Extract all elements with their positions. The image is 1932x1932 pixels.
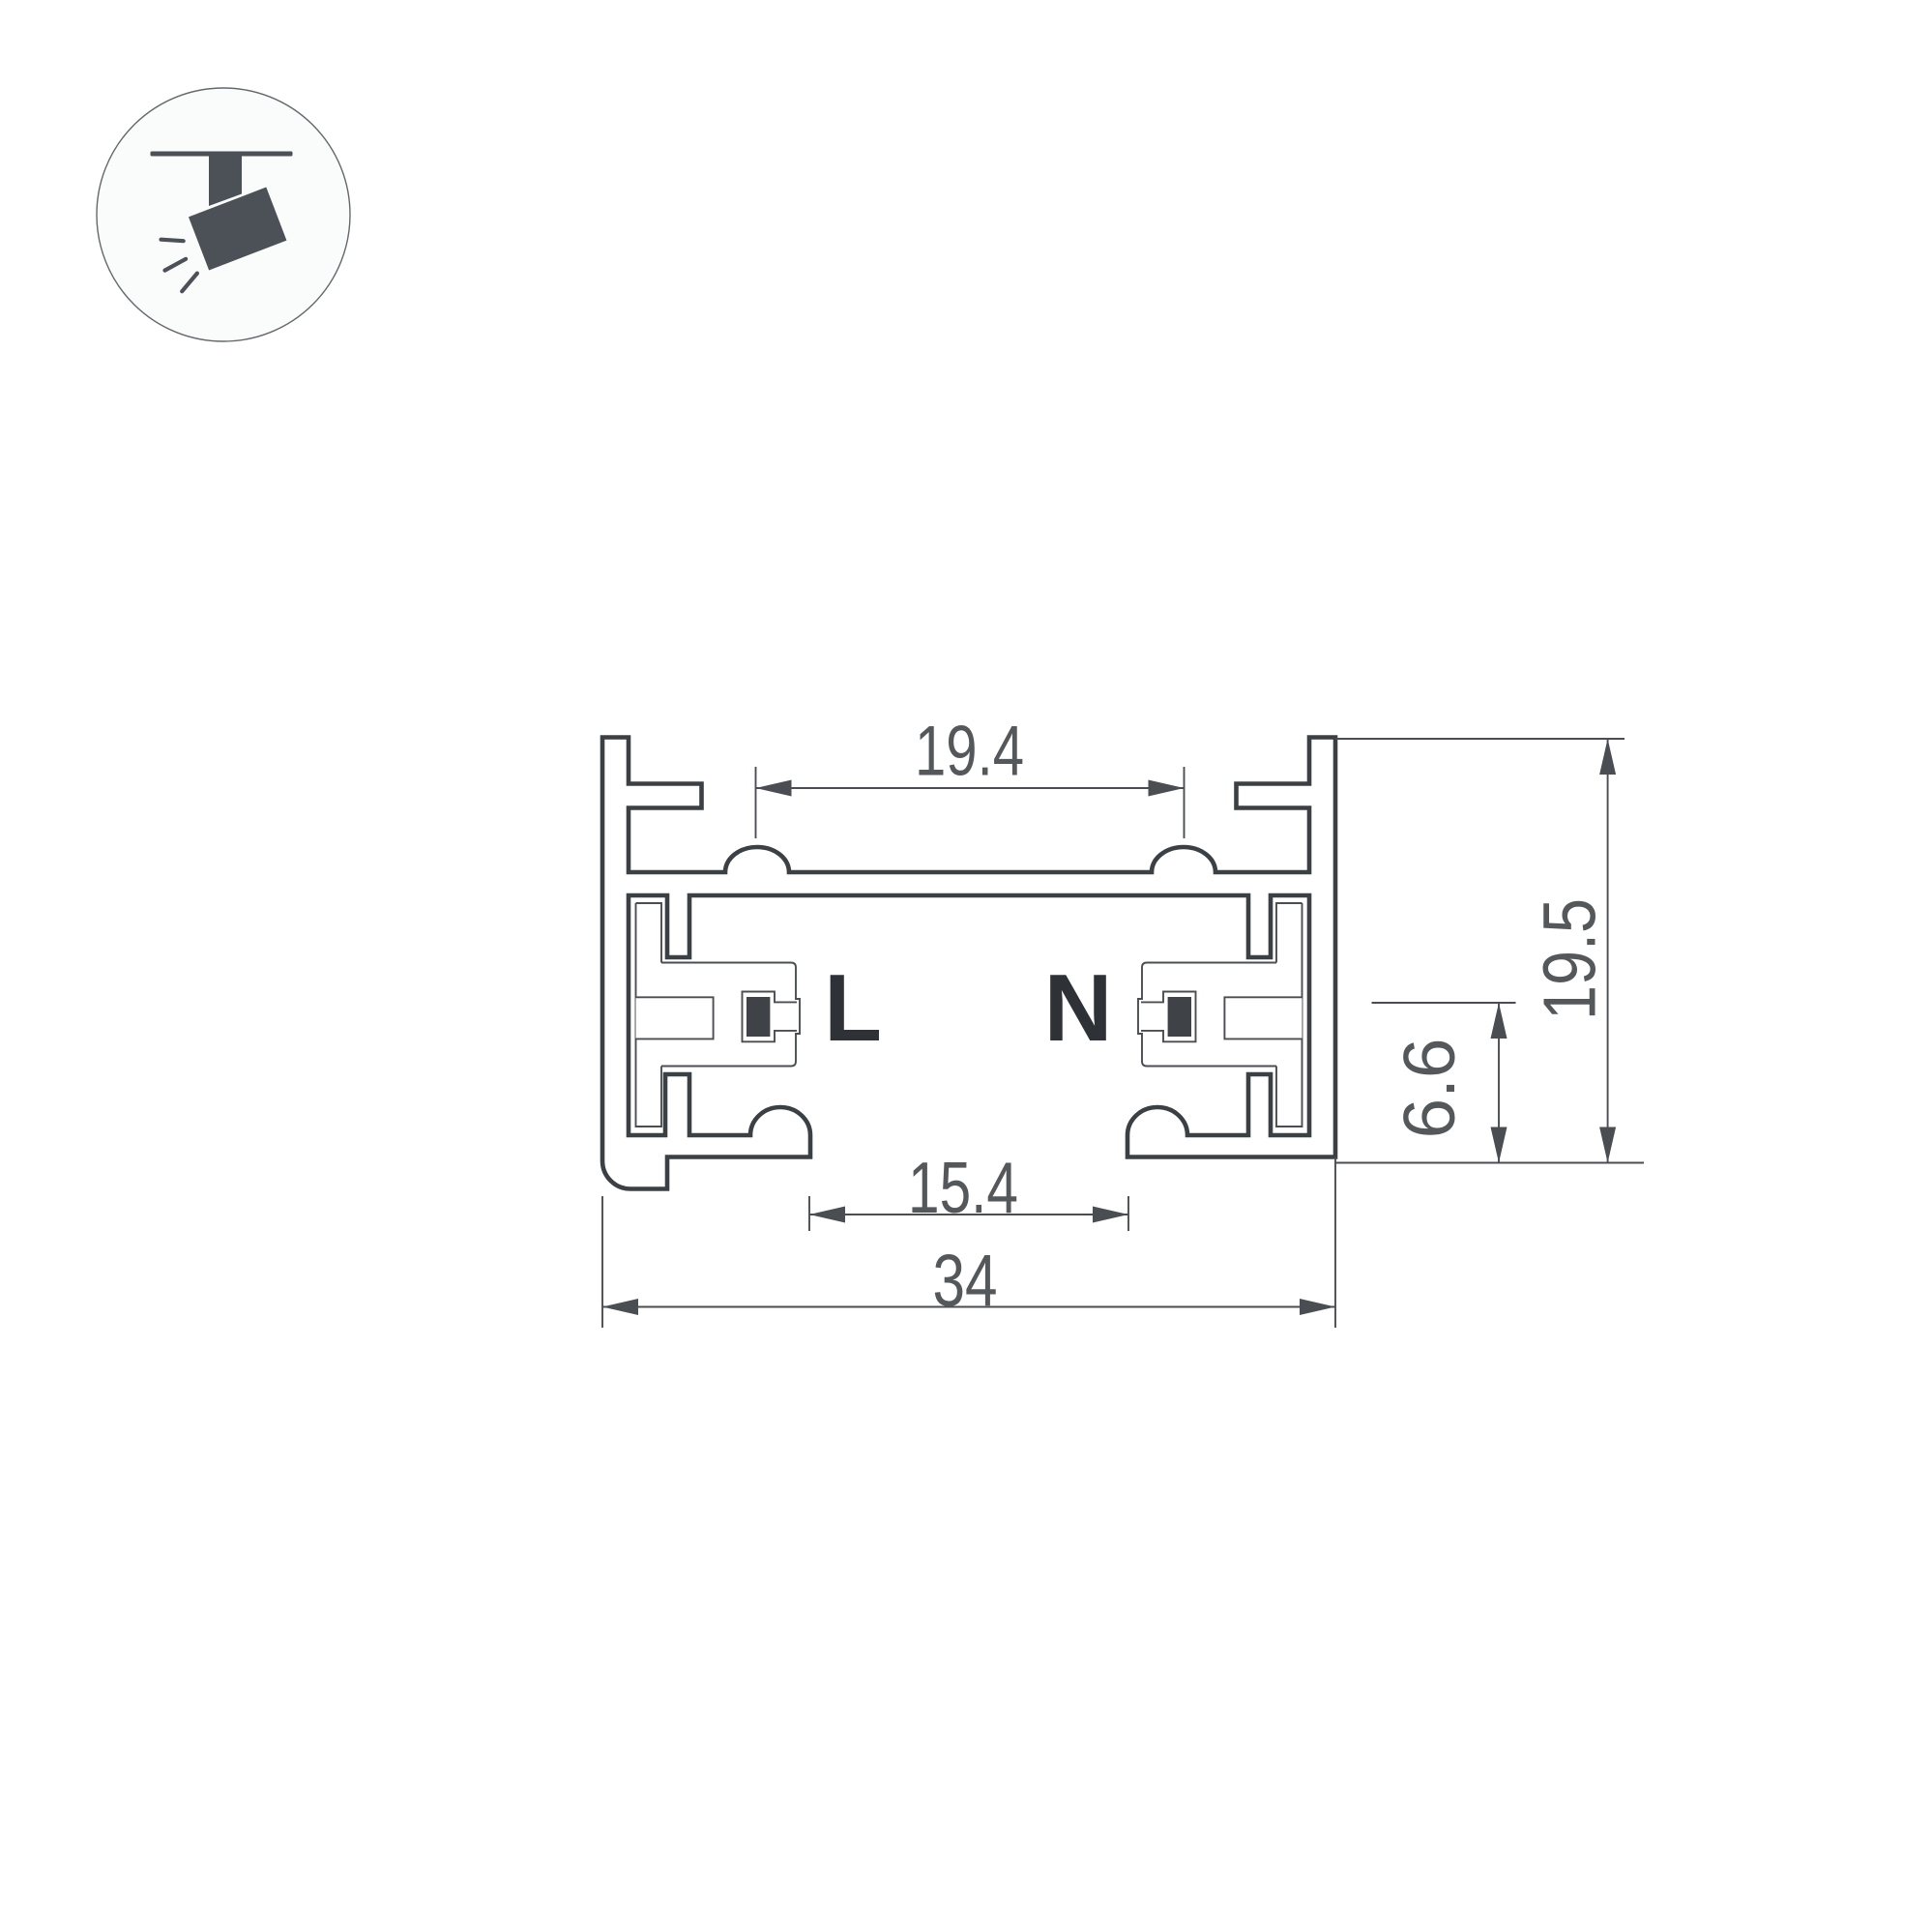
svg-text:15.4: 15.4 [908,1147,1018,1228]
svg-text:34: 34 [933,1241,998,1323]
svg-text:N: N [1044,954,1113,1061]
svg-text:L: L [824,954,882,1061]
svg-text:6.6: 6.6 [1389,1039,1470,1139]
svg-text:19.5: 19.5 [1529,898,1612,1020]
svg-text:19.4: 19.4 [915,713,1024,791]
